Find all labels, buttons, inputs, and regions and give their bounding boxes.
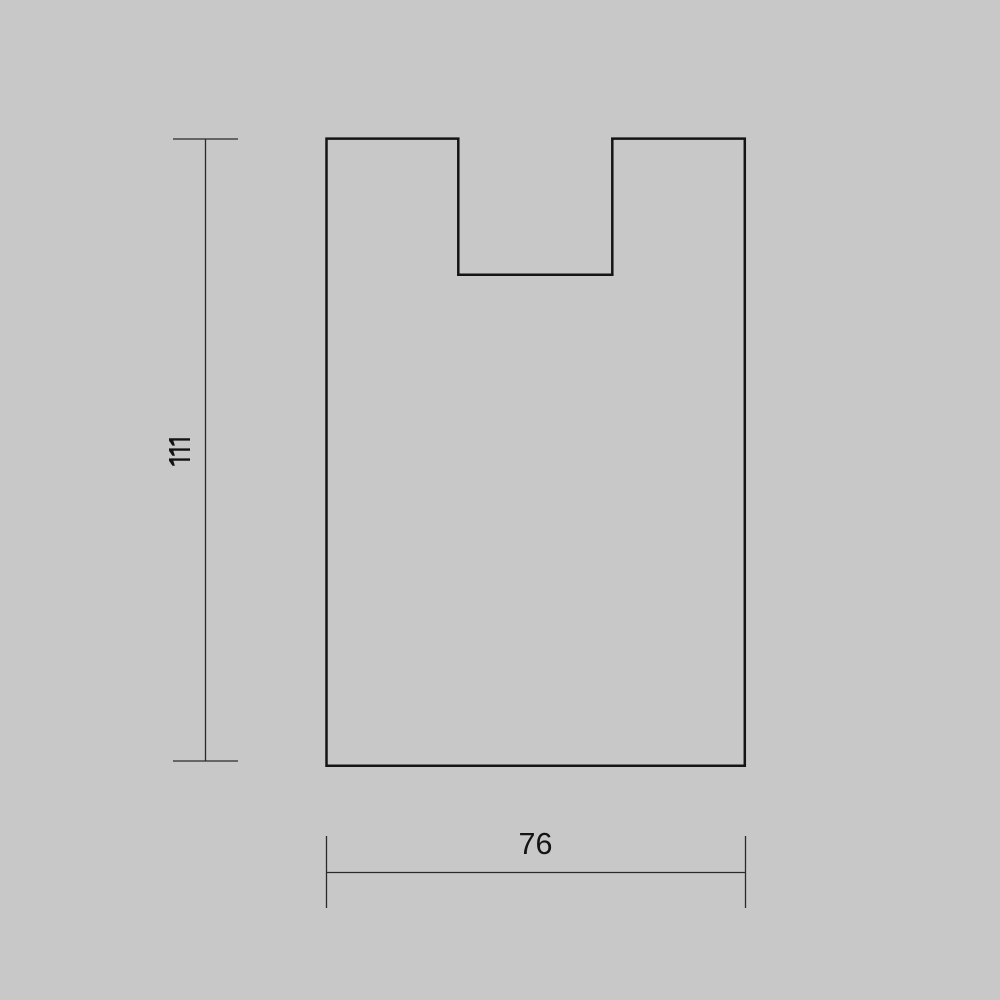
- svg-text:76: 76: [519, 827, 553, 861]
